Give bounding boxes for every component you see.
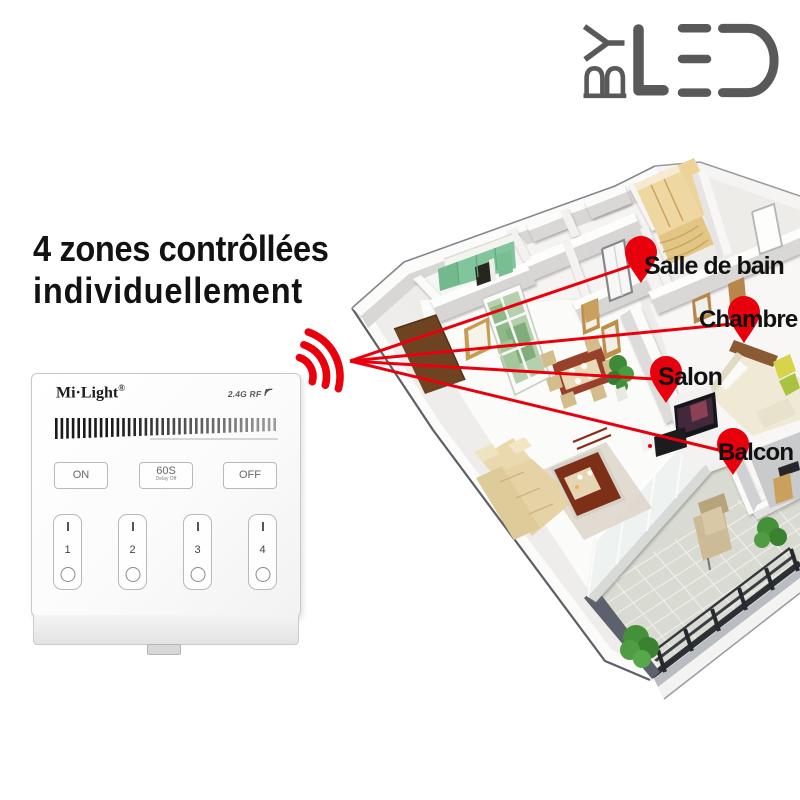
svg-text:Salle de bain: Salle de bain <box>644 252 784 280</box>
svg-text:Chambre: Chambre <box>699 306 798 333</box>
svg-text:Balcon: Balcon <box>718 439 793 466</box>
svg-text:Salon: Salon <box>658 363 722 391</box>
